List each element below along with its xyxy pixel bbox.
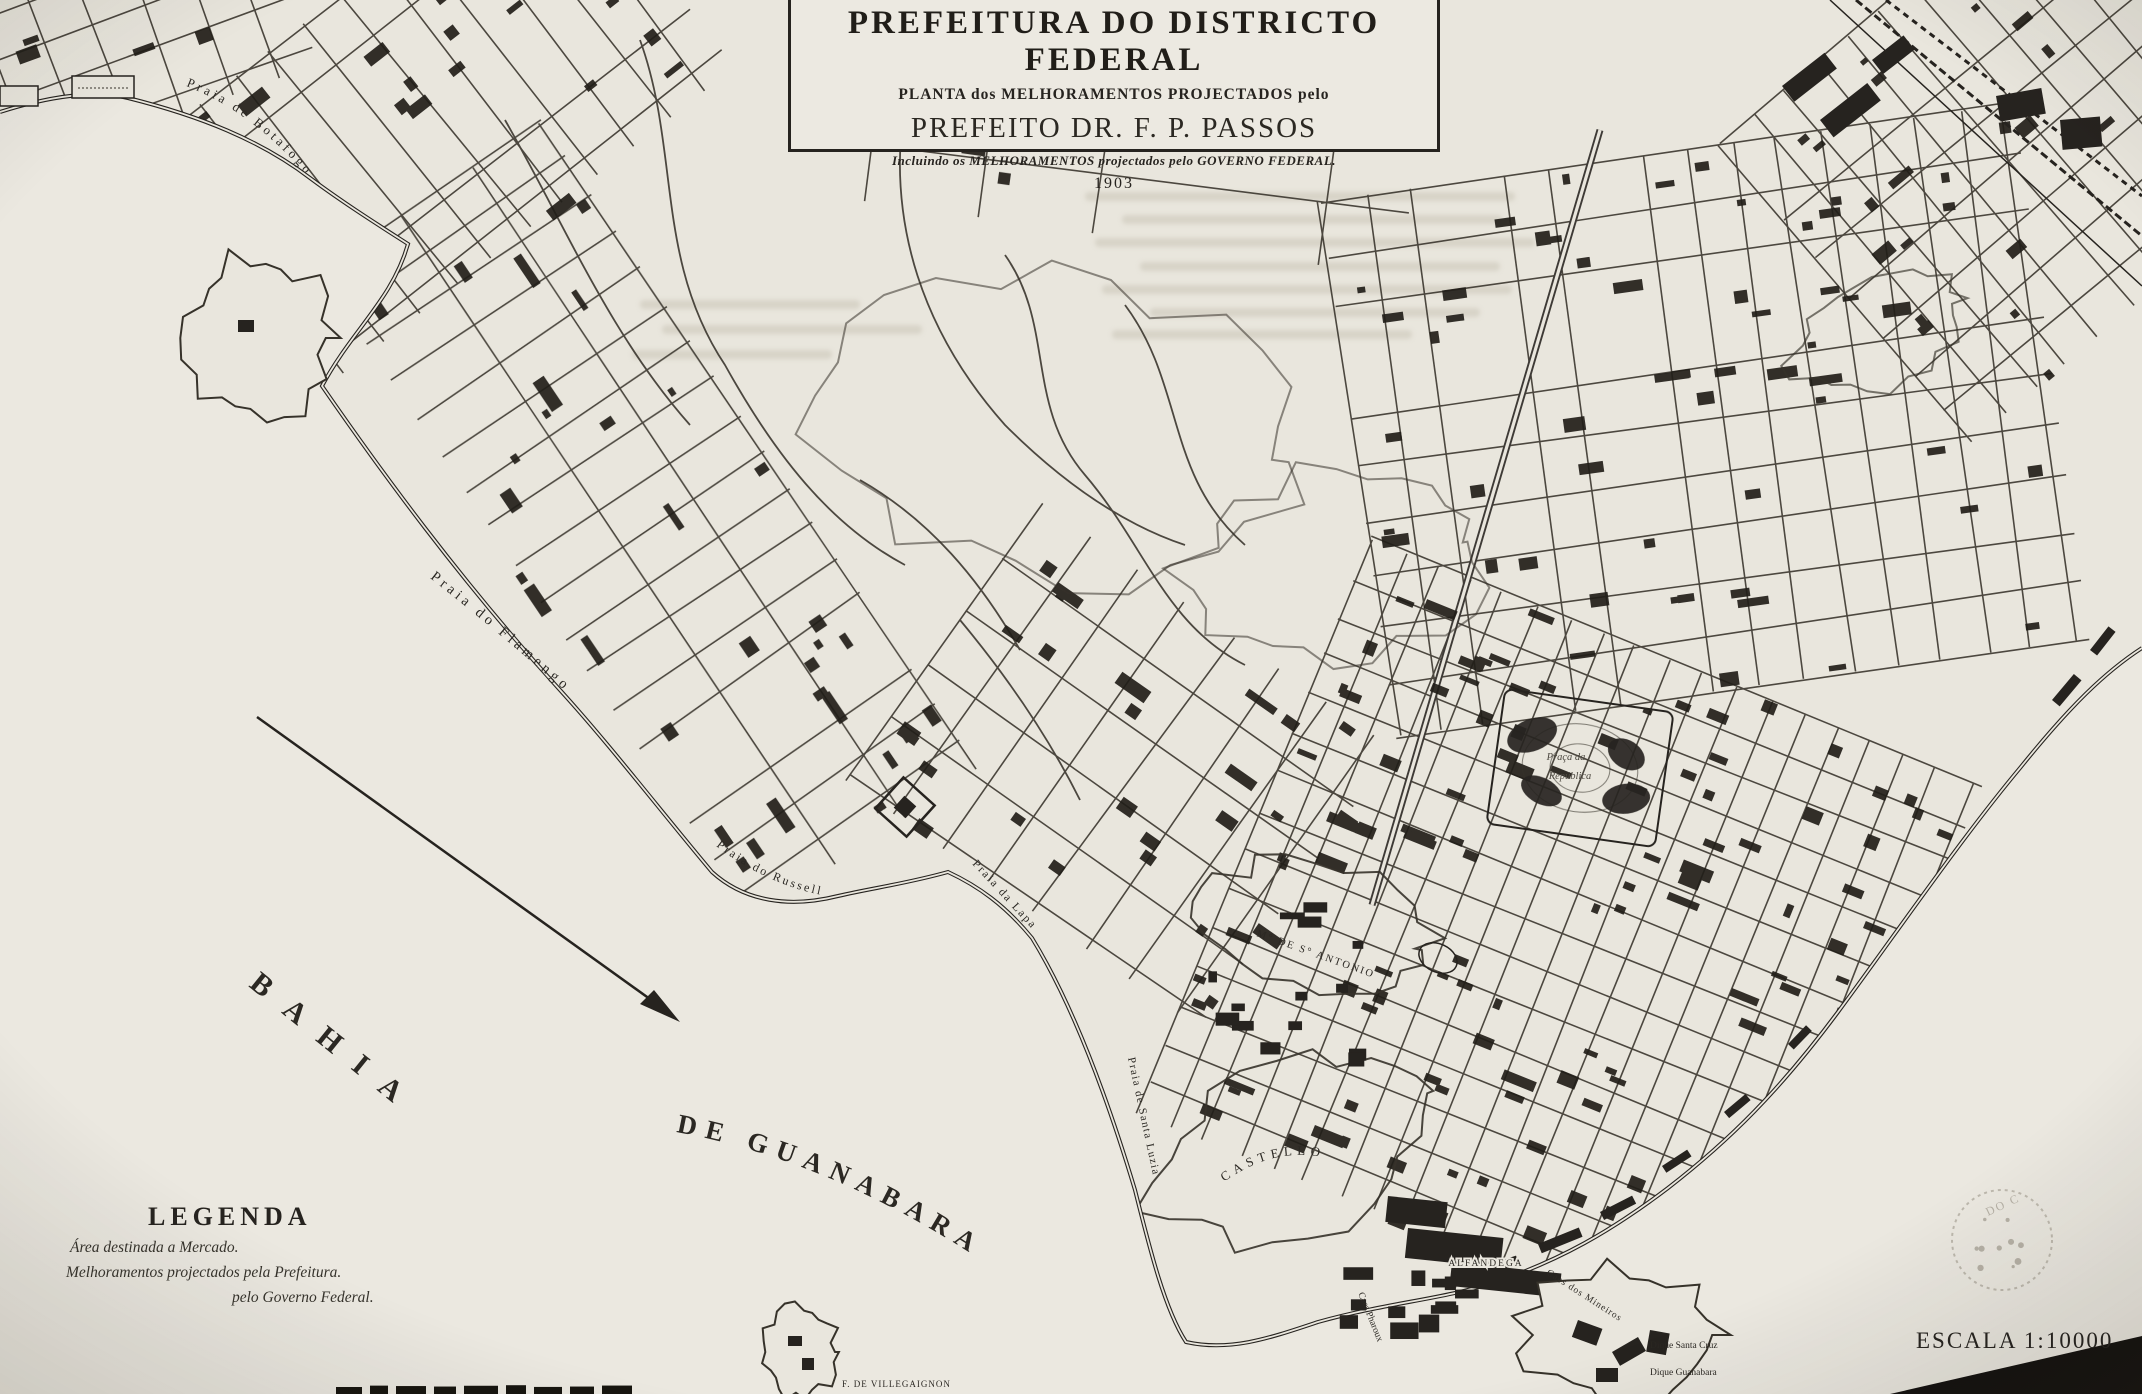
photo-vignette (0, 0, 2142, 1394)
map-title-cartouche: PREFEITURA DO DISTRICTO FEDERAL PLANTA d… (788, 0, 1440, 152)
map-canvas: Praia de BotafogoPraia do FlamengoPraia … (0, 0, 2142, 1394)
historical-map-photo: Praia de BotafogoPraia do FlamengoPraia … (0, 0, 2142, 1394)
legend-heading: LEGENDA (148, 1202, 374, 1232)
map-year: 1903 (791, 175, 1437, 193)
map-author: PREFEITO DR. F. P. PASSOS (791, 112, 1437, 145)
map-legend: LEGENDA Área destinada a Mercado. Melhor… (64, 1202, 374, 1307)
legend-item-mercado: Área destinada a Mercado. (70, 1239, 374, 1257)
map-subtitle: PLANTA dos MELHORAMENTOS PROJECTADOS pel… (791, 86, 1437, 104)
legend-item-governo-federal: pelo Governo Federal. (232, 1289, 374, 1307)
map-scale-label: ESCALA 1:10000 (1916, 1328, 2113, 1354)
legend-item-prefeitura: Melhoramentos projectados pela Prefeitur… (66, 1264, 374, 1282)
map-title: PREFEITURA DO DISTRICTO FEDERAL (791, 5, 1437, 79)
map-note: Incluindo os MELHORAMENTOS projectados p… (791, 153, 1437, 169)
